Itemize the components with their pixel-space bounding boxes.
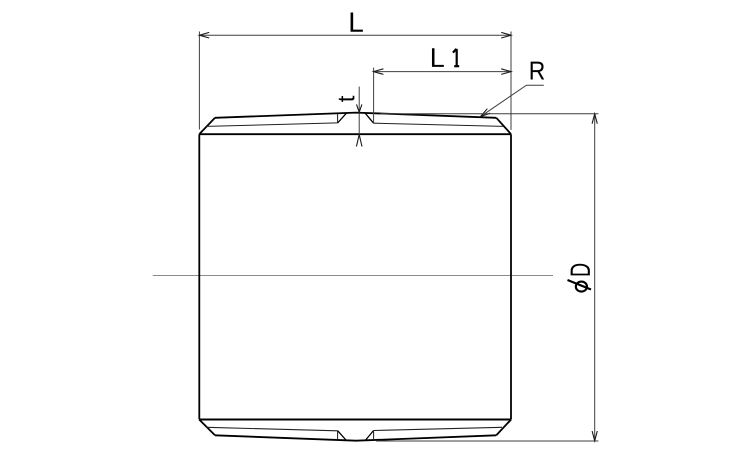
svg-text:L: L bbox=[430, 43, 445, 73]
svg-text:t: t bbox=[333, 95, 360, 102]
svg-text:L: L bbox=[348, 7, 364, 38]
svg-text:R: R bbox=[529, 57, 546, 86]
svg-text:D: D bbox=[566, 263, 597, 277]
